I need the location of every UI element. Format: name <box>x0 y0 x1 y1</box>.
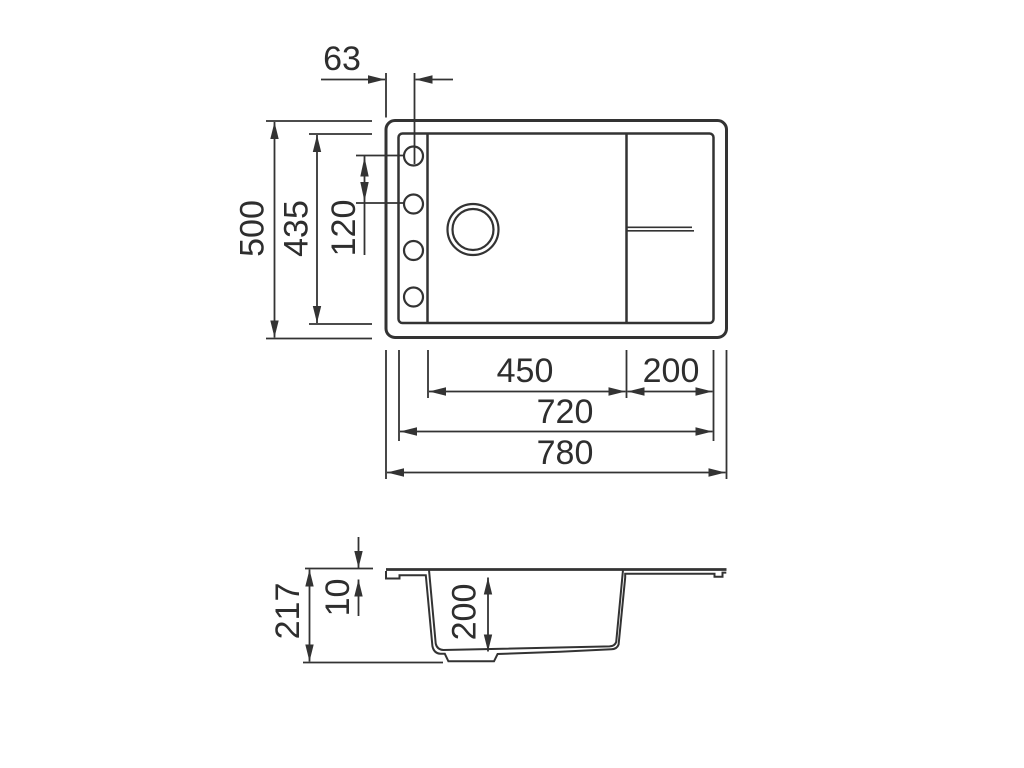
top-view: 63 500 435 120 <box>234 40 727 479</box>
dim-drainboard-width-label: 200 <box>643 352 700 390</box>
dim-hole-offset-label: 63 <box>323 40 361 78</box>
dim-bowl-width-label: 450 <box>497 352 554 390</box>
dim-overall-depth-label: 500 <box>234 200 272 257</box>
dim-inner-width-label: 720 <box>537 393 594 431</box>
sink-inner-rim <box>399 134 714 324</box>
dim-overall-width-label: 780 <box>537 434 594 472</box>
faucet-hole <box>404 241 423 260</box>
drain-hole-outer <box>448 204 499 255</box>
dim-overall-height-label: 217 <box>269 583 307 640</box>
dim-hole-spacing <box>356 156 404 256</box>
drain-hole-inner <box>453 209 494 250</box>
sink-outer-outline <box>386 121 727 338</box>
sink-technical-drawing: 63 500 435 120 <box>0 0 1024 768</box>
dim-hole-spacing-label: 120 <box>325 200 363 257</box>
faucet-hole <box>404 195 423 214</box>
dim-bowl-depth-label: 200 <box>446 584 484 641</box>
drawing-canvas: 63 500 435 120 <box>0 0 1024 768</box>
section-view: 217 10 200 <box>269 537 727 663</box>
arrowhead-up <box>360 157 368 177</box>
dim-inner-depth-label: 435 <box>278 200 316 257</box>
arrowhead-down <box>360 182 368 202</box>
faucet-hole <box>404 288 423 307</box>
faucet-hole <box>404 147 423 166</box>
dim-rim-thickness-label: 10 <box>319 579 357 617</box>
